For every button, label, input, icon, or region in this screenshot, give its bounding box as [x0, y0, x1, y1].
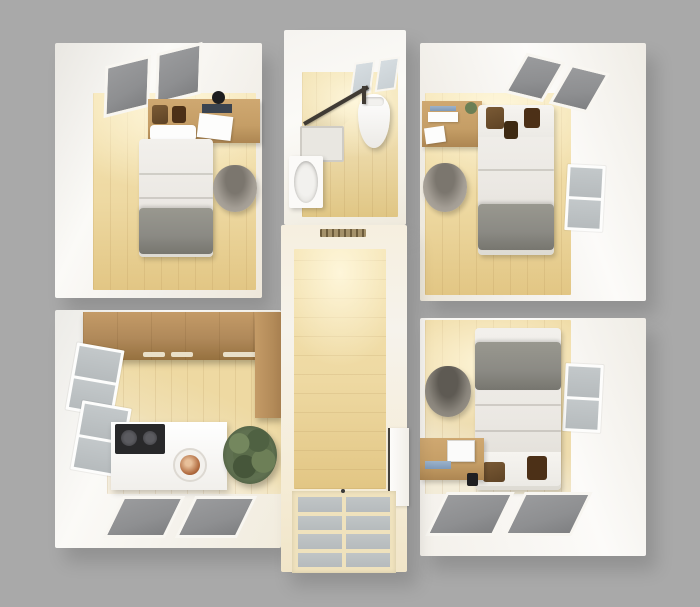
air-vent-icon	[320, 229, 366, 237]
wall-desk	[420, 438, 484, 480]
window-pane	[346, 534, 390, 549]
window-pane	[346, 516, 390, 531]
window-pane	[567, 199, 600, 229]
kitchen-counter	[111, 422, 227, 490]
skylight-pane	[503, 492, 592, 536]
cushion	[152, 105, 168, 124]
burner	[143, 431, 157, 445]
washer-drum	[180, 455, 200, 475]
gray-blanket	[475, 342, 561, 390]
hallway-floor	[294, 249, 386, 489]
burner	[121, 430, 137, 446]
bedroom-top-right	[420, 43, 646, 301]
small-plant-icon	[465, 102, 477, 114]
hallway	[281, 225, 407, 572]
shower-glass-frame	[362, 86, 366, 104]
gray-blanket	[478, 204, 554, 250]
cushion	[483, 462, 505, 482]
window-pane	[298, 553, 342, 568]
laptop-icon	[202, 104, 232, 113]
paper	[424, 126, 446, 145]
desk-chair	[213, 165, 257, 212]
desk-lamp-icon	[212, 91, 225, 104]
skylight-pane	[175, 496, 257, 538]
desk-chair	[423, 163, 467, 212]
duvet-crease	[478, 169, 554, 171]
cooktop-icon	[115, 424, 165, 454]
cushion	[527, 456, 547, 480]
bedroom-bottom-right	[420, 318, 646, 556]
corner-cabinet	[255, 312, 281, 418]
folders	[430, 106, 456, 111]
laptop-icon	[447, 440, 475, 462]
kitchen	[55, 310, 281, 548]
window-pane	[75, 346, 121, 382]
plant-icon	[223, 426, 277, 484]
duvet-crease	[475, 404, 561, 406]
bed	[475, 328, 561, 490]
paned-window	[292, 491, 396, 573]
papers	[197, 113, 234, 141]
papers	[428, 112, 458, 122]
folders	[425, 461, 451, 469]
skylight-pane	[425, 492, 514, 536]
sink-vanity	[289, 156, 323, 208]
duvet-crease	[139, 173, 213, 175]
window-lock-icon	[341, 489, 345, 493]
skylight-pane	[375, 56, 400, 92]
duvet-crease	[139, 197, 213, 199]
headboard-shelf	[148, 99, 260, 143]
window-pane	[565, 399, 599, 430]
window-pane	[567, 366, 601, 397]
window-pane	[298, 534, 342, 549]
cabinet-handle	[171, 352, 193, 357]
floor-skylights-icon	[436, 492, 582, 536]
washing-machine-icon	[173, 448, 207, 482]
speaker-icon	[467, 473, 478, 486]
cushion	[486, 107, 504, 129]
cushion	[172, 106, 186, 123]
bathroom	[284, 30, 406, 225]
window-pane	[298, 516, 342, 531]
window-pane	[298, 497, 342, 512]
wall-desk	[422, 101, 482, 147]
bed	[478, 105, 554, 255]
bedroom-top-left	[55, 43, 262, 298]
bed	[139, 139, 213, 257]
cushion	[524, 108, 540, 128]
floor-plan-render	[0, 0, 700, 607]
window-pane	[569, 167, 602, 197]
cabinet-handle	[143, 352, 165, 357]
window-pane	[346, 553, 390, 568]
desk-chair	[425, 366, 471, 417]
window-pane	[346, 497, 390, 512]
window	[564, 164, 605, 232]
skylight-pane	[103, 496, 185, 538]
window	[562, 363, 604, 433]
cushion	[504, 121, 518, 139]
sink-basin	[294, 161, 318, 203]
floor-skylights-icon	[113, 496, 247, 538]
gray-blanket	[139, 208, 213, 254]
duvet-crease	[475, 430, 561, 432]
